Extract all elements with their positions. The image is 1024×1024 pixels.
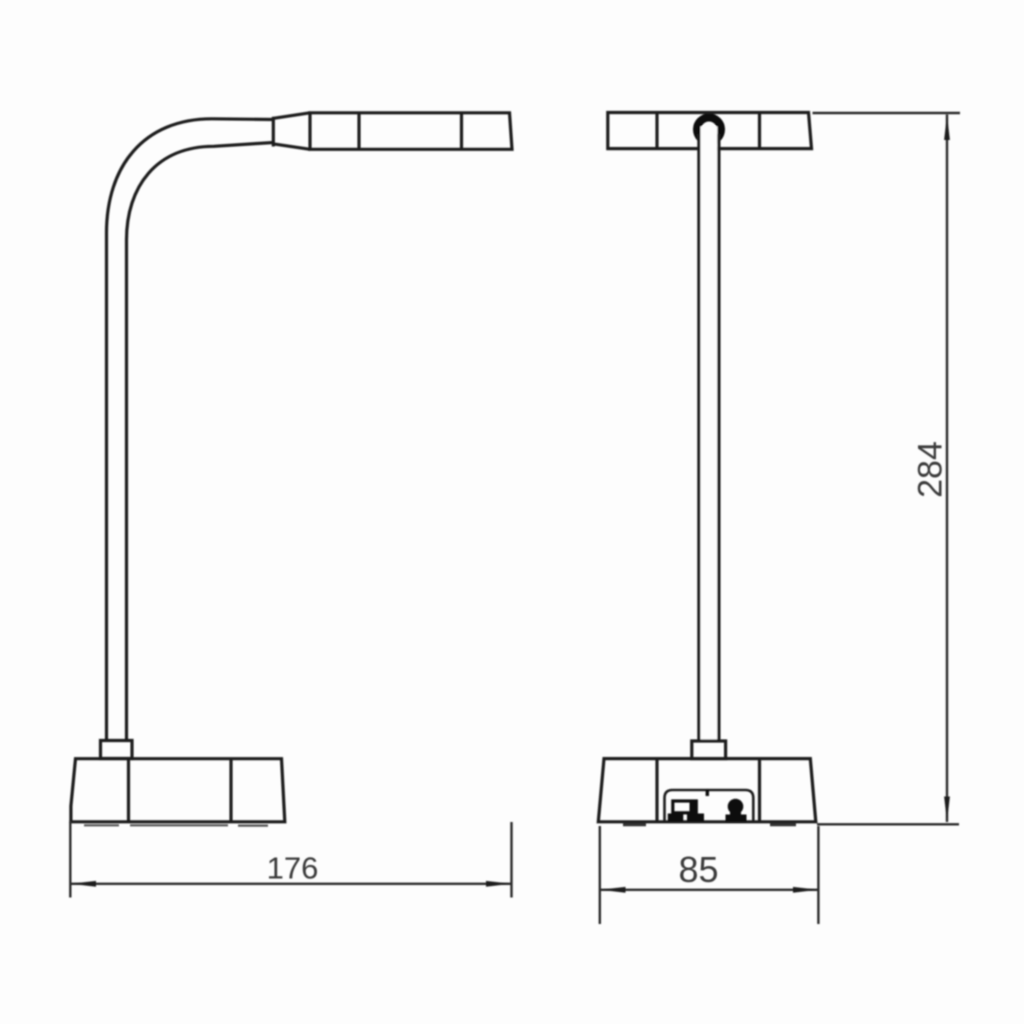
- svg-text:176: 176: [267, 851, 319, 886]
- svg-text:284: 284: [912, 441, 950, 498]
- svg-text:85: 85: [678, 849, 718, 890]
